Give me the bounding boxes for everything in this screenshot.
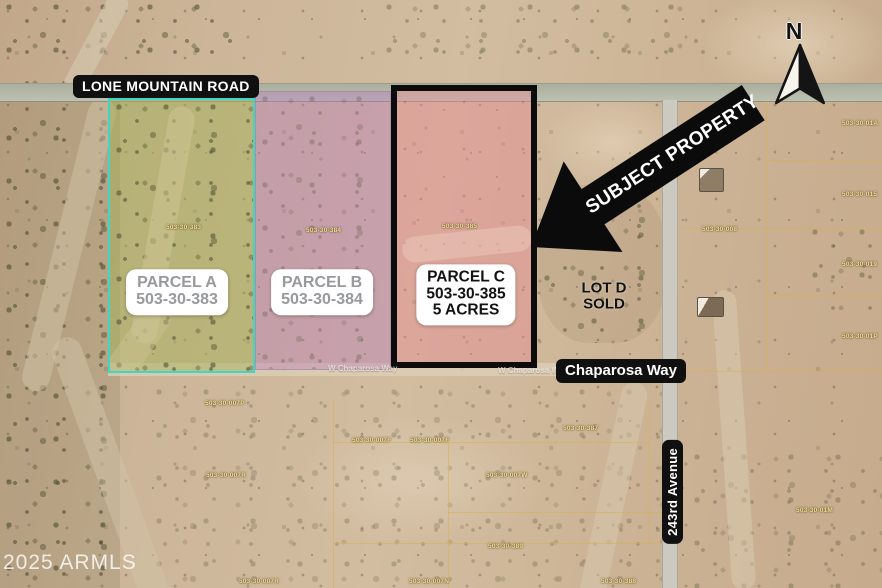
gis-parcel-number: 503-30-007P xyxy=(205,400,245,407)
gis-parcel-number: 503-30-008 xyxy=(702,226,737,233)
lot-d-name: LOT D xyxy=(582,280,627,296)
parcel-b-label: PARCEL B 503-30-384 xyxy=(271,269,373,315)
parcel-c-size: 5 ACRES xyxy=(426,303,505,320)
parcel-c-name: PARCEL C xyxy=(426,269,505,286)
lot-d-status: SOLD xyxy=(582,296,627,312)
gis-parcel-number: 503-30-01P xyxy=(842,333,878,340)
parcel-line xyxy=(333,400,334,588)
gis-parcel-number: 503-30-385 xyxy=(442,223,477,230)
parcel-c-apn: 503-30-385 xyxy=(426,286,505,303)
lone-mountain-road-label: LONE MOUNTAIN ROAD xyxy=(73,75,259,98)
parcel-line xyxy=(766,295,882,296)
lot-d-label: LOT D SOLD xyxy=(582,280,627,312)
gis-parcel-number: 503-30-007R xyxy=(239,578,279,585)
parcel-a-name: PARCEL A xyxy=(136,274,218,291)
parcel-line xyxy=(448,442,449,588)
north-label: N xyxy=(779,18,809,45)
gis-parcel-number: 503-30-387 xyxy=(563,425,598,432)
parcel-line xyxy=(766,160,882,161)
parcel-c-label: PARCEL C 503-30-385 5 ACRES xyxy=(416,264,515,325)
parcel-line xyxy=(448,512,662,513)
faint-street-name: W Chaparosa Way xyxy=(328,364,398,373)
vegetation-texture xyxy=(688,450,882,588)
chaparosa-way-label: Chaparosa Way xyxy=(556,359,686,383)
parcel-line xyxy=(766,101,767,371)
faint-street-name: W Chaparosa Wa xyxy=(498,366,563,375)
parcel-b-name: PARCEL B xyxy=(281,274,363,291)
parcel-a-overlay xyxy=(108,98,255,373)
gis-parcel-number: 503-30-019 xyxy=(842,261,877,268)
243rd-avenue-label: 243rd Avenue xyxy=(662,440,683,544)
vegetation-texture xyxy=(380,0,710,70)
gis-parcel-number: 503-30-383 xyxy=(166,224,201,231)
gis-parcel-number: 503-30-015 xyxy=(842,191,877,198)
gis-parcel-number: 503-30-01M xyxy=(796,507,833,514)
aerial-parcel-map: 503-30-383 503-30-384 503-30-385 503-30-… xyxy=(0,0,882,588)
gis-parcel-number: 503-30-007F xyxy=(352,437,391,444)
parcel-a-apn: 503-30-383 xyxy=(136,292,218,309)
parcel-b-apn: 503-30-384 xyxy=(281,292,363,309)
gis-parcel-number: 503-30-388 xyxy=(601,578,636,585)
parcel-a-label: PARCEL A 503-30-383 xyxy=(126,269,228,315)
building xyxy=(697,297,724,317)
building xyxy=(699,168,724,192)
gis-parcel-number: 503-30-389 xyxy=(488,543,523,550)
parcel-line xyxy=(680,371,882,372)
armls-watermark: 2025 ARMLS xyxy=(3,551,137,575)
gis-parcel-number: 503-30-007N xyxy=(409,578,449,585)
gis-parcel-number: 503-30-01A xyxy=(842,120,878,127)
north-arrow-icon xyxy=(769,42,831,106)
gis-parcel-number: 503-30-007F xyxy=(410,437,449,444)
gis-parcel-number: 503-30-007W xyxy=(486,472,528,479)
parcel-line xyxy=(649,400,650,543)
gis-parcel-number: 503-30-384 xyxy=(306,227,341,234)
gis-parcel-number: 503-30-007R xyxy=(206,472,246,479)
